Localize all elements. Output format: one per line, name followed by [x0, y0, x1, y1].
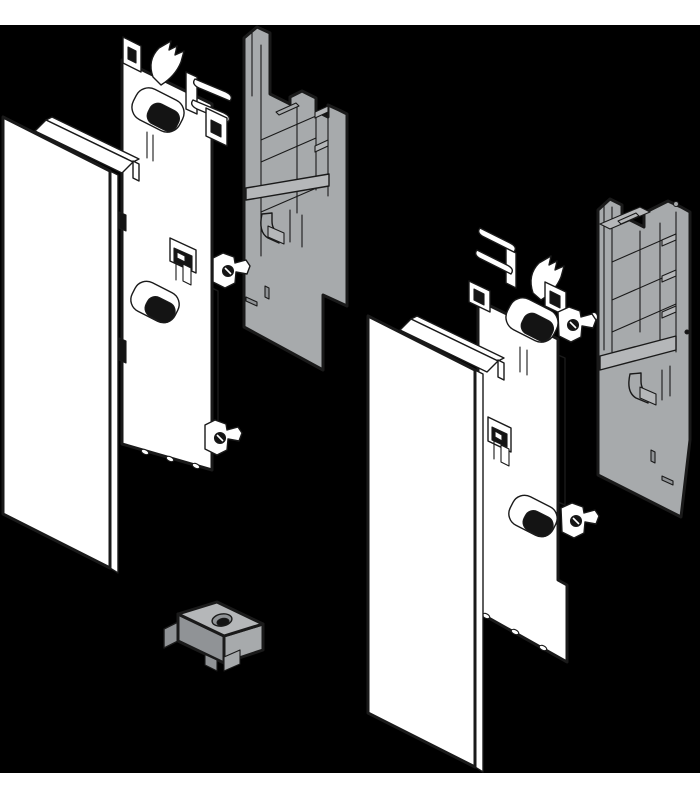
- front-panel-left: [3, 117, 139, 573]
- illustration-page: [0, 0, 700, 800]
- front-panel-right: [368, 316, 504, 772]
- housing-right-top-nub: [674, 202, 679, 207]
- housing-right-pin-hole: [685, 330, 689, 334]
- exploded-diagram: [0, 0, 700, 800]
- adapter-housing-right: [591, 199, 691, 517]
